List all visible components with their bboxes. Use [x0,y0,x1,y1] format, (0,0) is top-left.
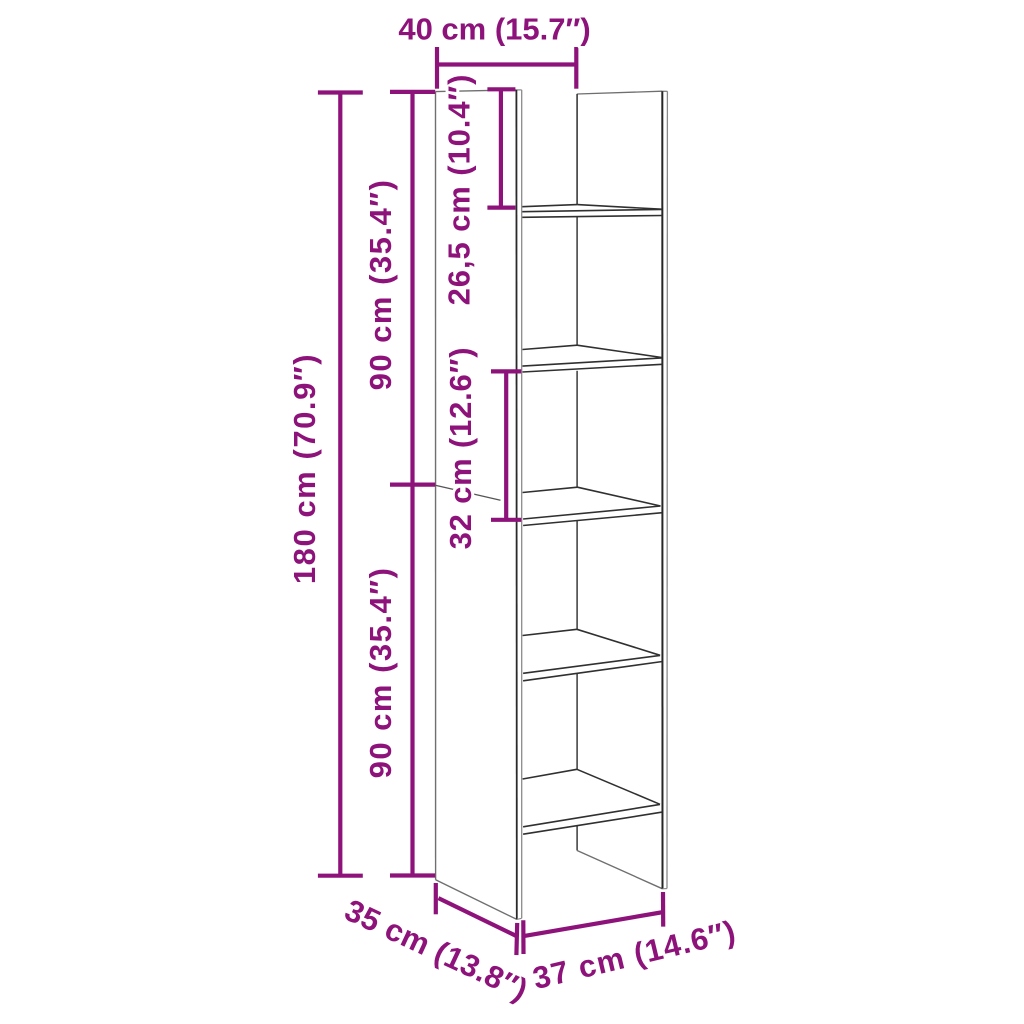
svg-text:32 cm (12.6″): 32 cm (12.6″) [443,347,478,550]
svg-text:26,5 cm (10.4″): 26,5 cm (10.4″) [442,74,477,306]
svg-text:90 cm (35.4″): 90 cm (35.4″) [363,179,398,391]
svg-text:40 cm (15.7″): 40 cm (15.7″) [398,11,590,46]
svg-text:180 cm (70.9″): 180 cm (70.9″) [287,353,322,584]
svg-text:90 cm (35.4″): 90 cm (35.4″) [363,567,398,779]
